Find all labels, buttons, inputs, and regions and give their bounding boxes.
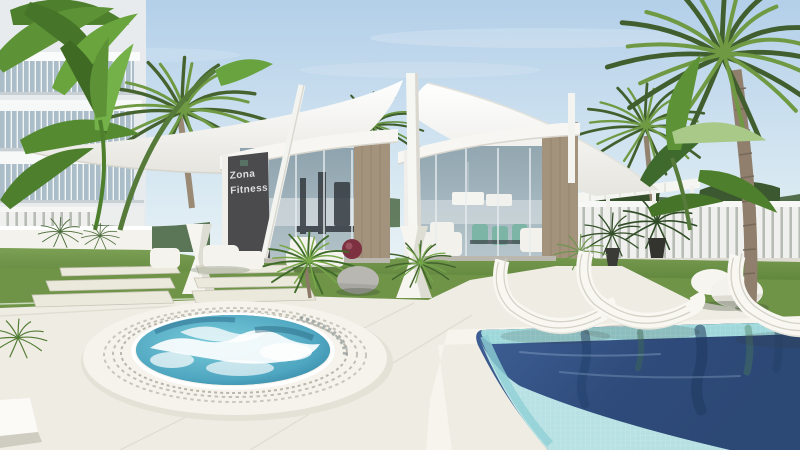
scene-canvas: [0, 0, 800, 450]
rendered-photo: Zona Fitness: [0, 0, 800, 450]
zona-fitness-sign-text: Zona Fitness: [230, 165, 271, 198]
maroon-cushion: [342, 239, 362, 259]
